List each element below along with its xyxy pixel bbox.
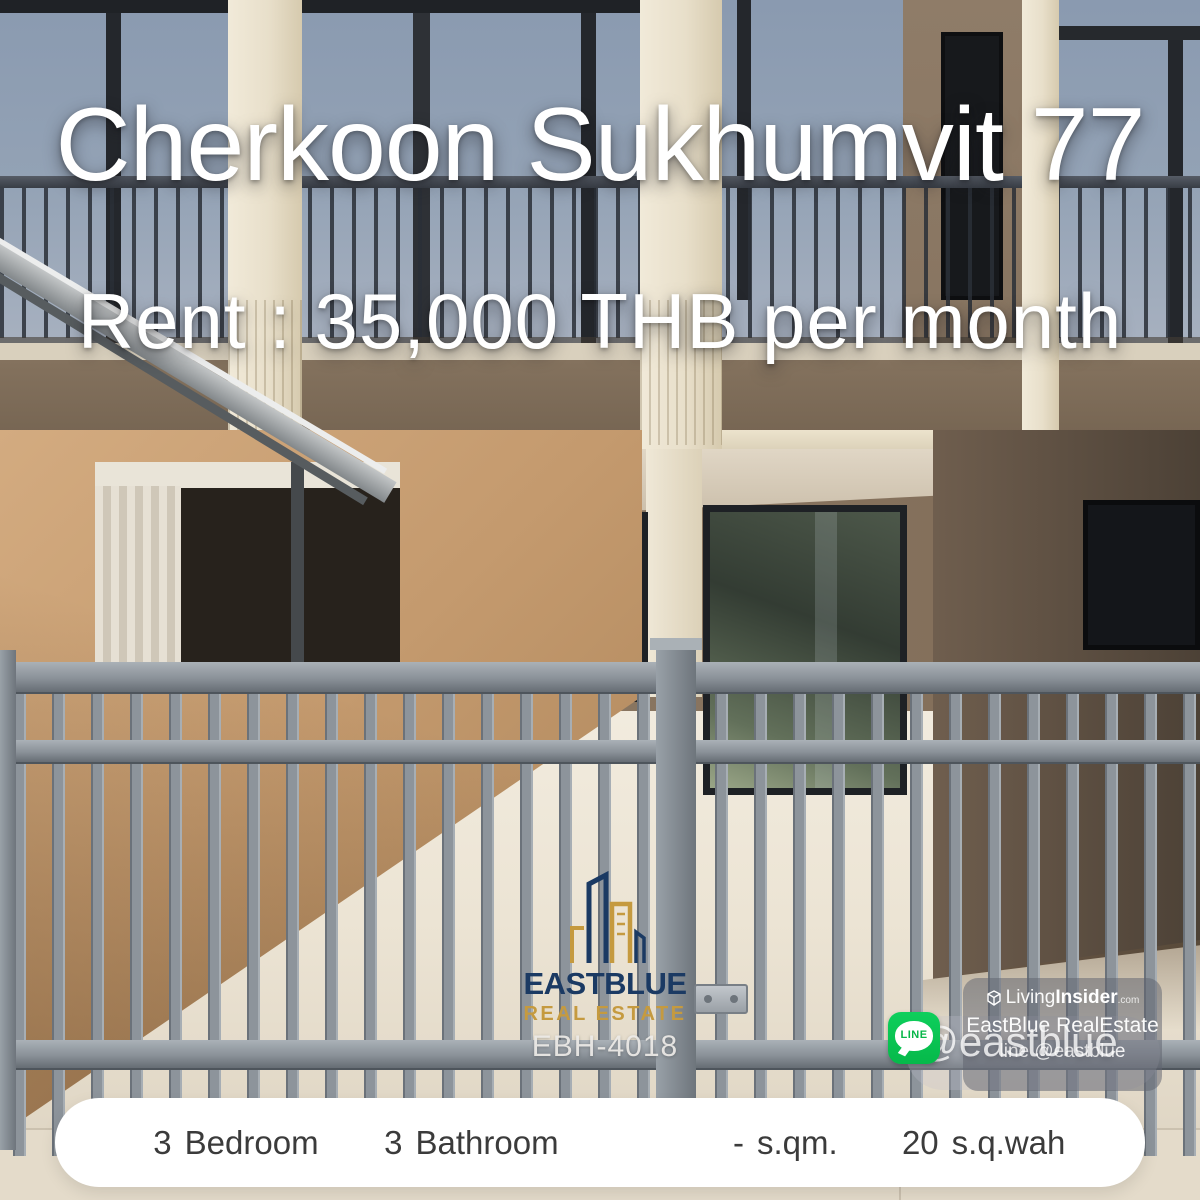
spec-label: s.q.wah: [952, 1124, 1066, 1161]
door-frame-post: [291, 462, 304, 692]
fence-bars-upper: [0, 694, 1200, 742]
window-top-frame: [1058, 26, 1200, 40]
brand-light: Living: [1006, 987, 1056, 1008]
rent-price-line: Rent : 35,000 THB per month: [0, 276, 1200, 367]
listing-title: Cherkoon Sukhumvit 77: [0, 86, 1200, 205]
fence-top-rail: [0, 662, 1200, 694]
side-window: [1083, 500, 1200, 650]
spec-value: 3: [153, 1124, 171, 1161]
spec-bedrooms: 3Bedroom: [153, 1124, 318, 1162]
specs-bar: 3Bedroom 3Bathroom -s.qm. 20s.q.wah: [55, 1098, 1145, 1187]
spec-label: s.qm.: [757, 1124, 838, 1161]
agency-tagline: REAL ESTATE: [455, 1003, 755, 1026]
agency-logo: EASTBLUE REAL ESTATE: [455, 868, 755, 1026]
spec-value: -: [733, 1124, 744, 1161]
brand-bold: Insider: [1055, 987, 1117, 1008]
window-top-frame: [0, 0, 640, 13]
spec-label: Bathroom: [416, 1124, 559, 1161]
fence-left-post: [0, 650, 16, 1150]
listing-poster: Cherkoon Sukhumvit 77 Rent : 35,000 THB …: [0, 0, 1200, 1200]
spec-area-sqm: -s.qm.: [733, 1124, 838, 1162]
livinginsider-cube-icon: [986, 990, 1002, 1006]
brand-suffix: .com: [1118, 995, 1140, 1006]
spec-label: Bedroom: [185, 1124, 319, 1161]
line-icon-label: LINE: [888, 1029, 940, 1041]
spec-value: 3: [384, 1124, 402, 1161]
line-app-icon: LINE: [888, 1012, 940, 1064]
facade-column-right: [1022, 0, 1059, 449]
watermark-brand: LivingInsider.com: [963, 987, 1162, 1009]
line-handle-text: @eastblue: [908, 1018, 1126, 1066]
fence-mid-rail: [0, 740, 1200, 764]
spec-value: 20: [902, 1124, 939, 1161]
spec-bathrooms: 3Bathroom: [384, 1124, 558, 1162]
buildings-skyline-icon: [559, 868, 651, 964]
spec-area-sqwah: 20s.q.wah: [902, 1124, 1065, 1162]
agency-name: EASTBLUE: [455, 966, 755, 1002]
gate-post-cap: [650, 638, 702, 650]
listing-ref-code: EBH-4018: [455, 1030, 755, 1064]
facade-column-center: [640, 0, 722, 449]
